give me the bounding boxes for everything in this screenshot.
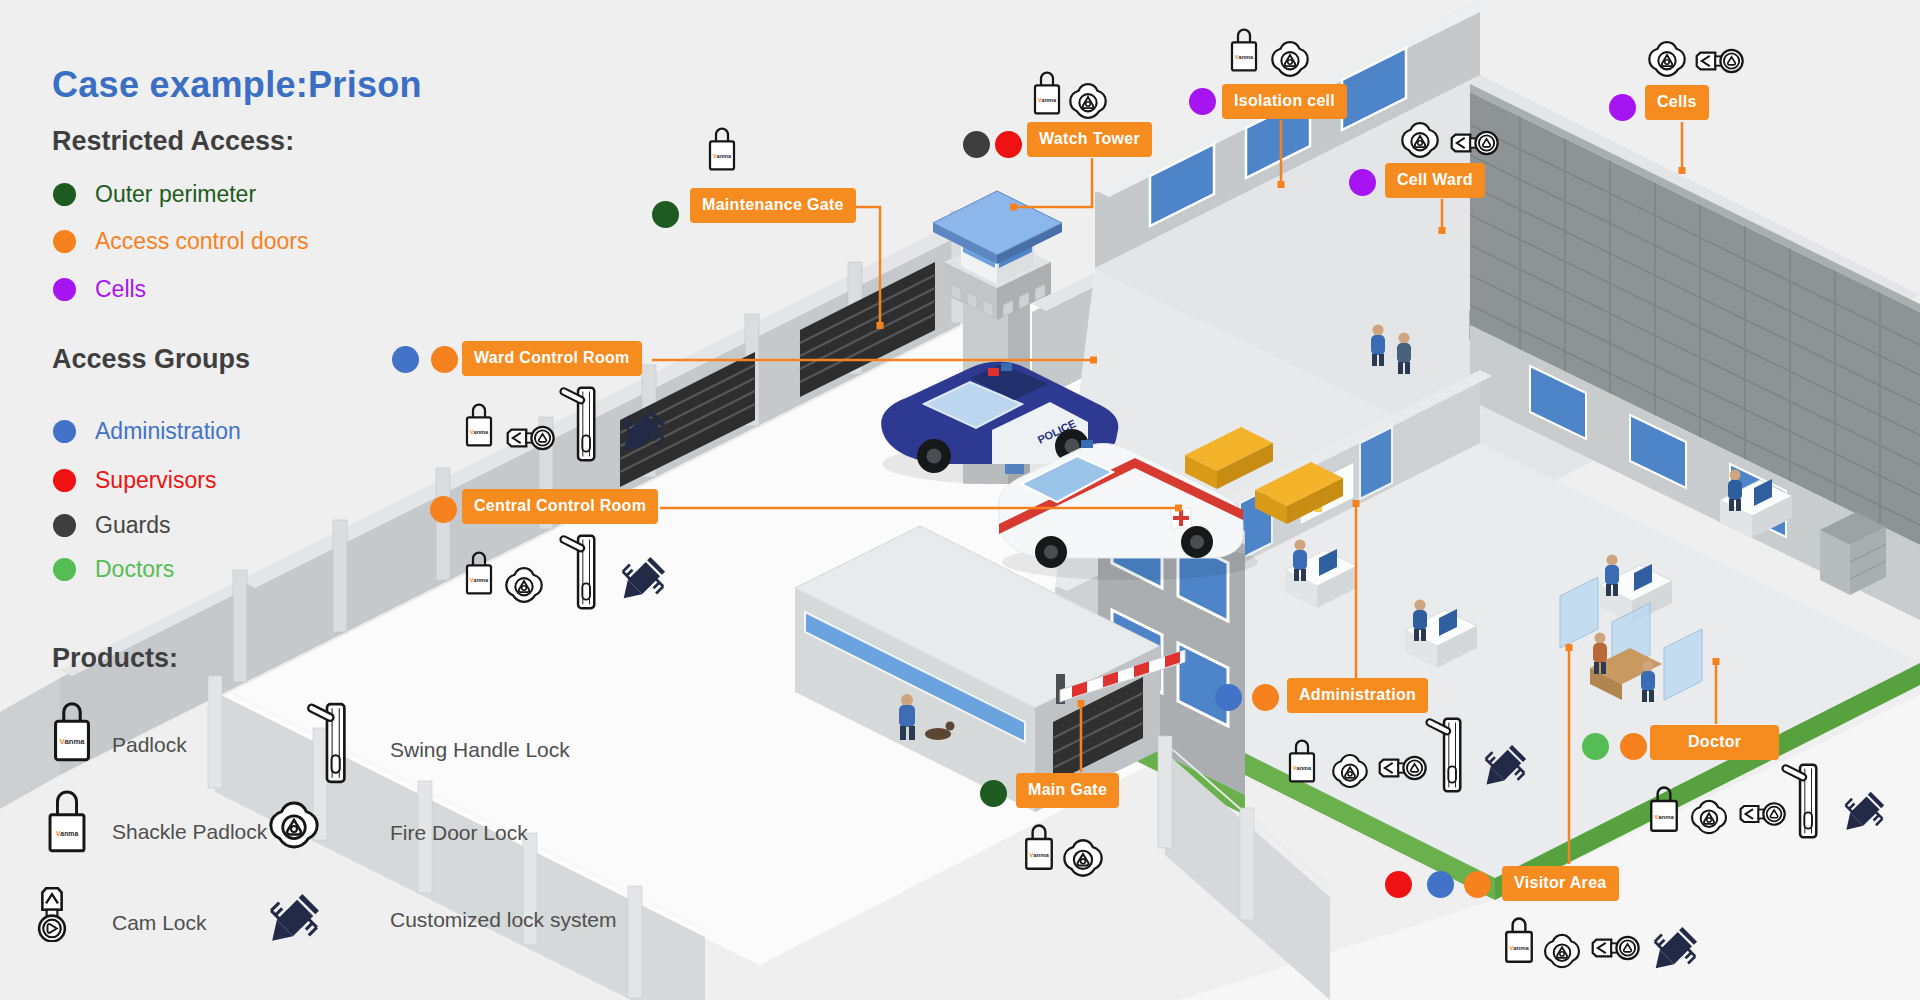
swing-handle-lock-icon [1780,758,1822,842]
legend-label: Doctors [95,556,174,583]
callout-cells: Cells [1645,85,1709,120]
legend-item-administration: Administration [53,418,241,444]
product-label: Cam Lock [112,911,207,935]
padlock-icon [1022,815,1056,875]
padlock-icon [1647,778,1681,836]
padlock-icon [50,695,94,763]
restricted-access-heading: Restricted Access: [52,126,294,157]
outer-perimeter-dot [53,183,76,206]
callout-main-gate: Main Gate [1016,773,1119,808]
cells-dot [1349,169,1376,196]
swing-handle-lock-icon [558,530,600,612]
cam-lock-icon [36,882,96,942]
legend-item-outer-perimeter: Outer perimeter [53,181,256,207]
callout-doctor: Doctor [1650,725,1779,760]
callout-administration: Administration [1287,678,1428,713]
fire-door-lock-icon [1331,753,1369,789]
fire-door-lock-icon [504,566,544,604]
customized-lock-system-icon [268,893,320,945]
swing-handle-lock-icon [1424,712,1466,796]
customized-lock-system-icon [620,556,666,602]
doctors-dot [1582,733,1609,760]
legend-item-doctors: Doctors [53,556,174,582]
fire-door-lock-icon [1690,798,1728,836]
legend-label: Cells [95,276,146,303]
padlock-icon [463,542,495,600]
product-label: Customized lock system [390,908,616,932]
administration-dot [1215,684,1242,711]
fire-door-lock-icon [1647,40,1687,78]
supervisors-dot [995,131,1022,158]
cam-lock-icon [1693,47,1745,75]
cam-lock-icon [1448,129,1500,157]
page-title: Case example:Prison [52,64,422,106]
access-control-doors-dot [431,346,458,373]
legend-item-supervisors: Supervisors [53,467,216,493]
padlock-icon [463,394,495,452]
outer-perimeter-dot [652,201,679,228]
legend-item-guards: Guards [53,512,170,538]
access-control-doors-dot [1620,733,1647,760]
callout-visitor-area: Visitor Area [1502,866,1619,901]
legend-item-cells: Cells [53,276,146,302]
access-control-doors-dot [53,230,76,253]
callout-watch-tower: Watch Tower [1027,122,1152,157]
guards-dot [963,131,990,158]
access-groups-heading: Access Groups [52,344,250,375]
legend-label: Access control doors [95,228,308,255]
cam-lock-icon [504,424,556,452]
callout-ward-control-room: Ward Control Room [462,341,642,376]
legend-item-access-control-doors: Access control doors [53,228,308,254]
callout-cell-ward: Cell Ward [1385,163,1485,198]
fire-door-lock-icon [268,800,320,850]
shackle-padlock-icon [44,784,90,854]
guards-dot [53,514,76,537]
administration-dot [1427,871,1454,898]
customized-lock-system-icon [1652,926,1698,972]
fire-door-lock-icon [1062,838,1104,878]
outer-perimeter-dot [980,780,1007,807]
padlock-icon [1031,62,1063,120]
padlock-icon [1228,18,1260,78]
swing-handle-lock-icon [558,382,600,464]
product-label: Swing Handle Lock [390,738,570,762]
callout-maintenance-gate: Maintenance Gate [690,188,856,223]
access-control-doors-dot [1252,684,1279,711]
access-control-doors-dot [1464,871,1491,898]
fire-door-lock-icon [1400,121,1440,159]
fire-door-lock-icon [1068,82,1108,120]
cells-dot [1609,94,1636,121]
callout-isolation-cell: Isolation cell [1222,84,1347,119]
customized-lock-system-icon [620,408,666,454]
customized-lock-system-icon [1843,791,1885,833]
legend-label: Outer perimeter [95,181,256,208]
supervisors-dot [53,469,76,492]
supervisors-dot [1385,871,1412,898]
administration-dot [53,420,76,443]
legend-label: Supervisors [95,467,216,494]
access-control-doors-dot [430,496,457,523]
products-heading: Products: [52,643,178,674]
swing-handle-lock-icon [305,698,351,786]
cells-dot [53,278,76,301]
cam-lock-icon [1589,934,1641,962]
customized-lock-system-icon [1483,744,1527,788]
doctors-dot [53,558,76,581]
legend-label: Administration [95,418,241,445]
administration-dot [392,346,419,373]
cells-dot [1189,88,1216,115]
legend-label: Guards [95,512,170,539]
product-label: Shackle Padlock [112,820,267,844]
fire-door-lock-icon [1270,40,1310,78]
padlock-icon [1502,908,1536,968]
padlock-icon [706,118,738,176]
product-label: Padlock [112,733,187,757]
callout-central-control-room: Central Control Room [462,489,658,524]
padlock-icon [1286,730,1318,788]
fire-door-lock-icon [1543,932,1581,970]
cam-lock-icon [1376,754,1428,782]
product-label: Fire Door Lock [390,821,528,845]
